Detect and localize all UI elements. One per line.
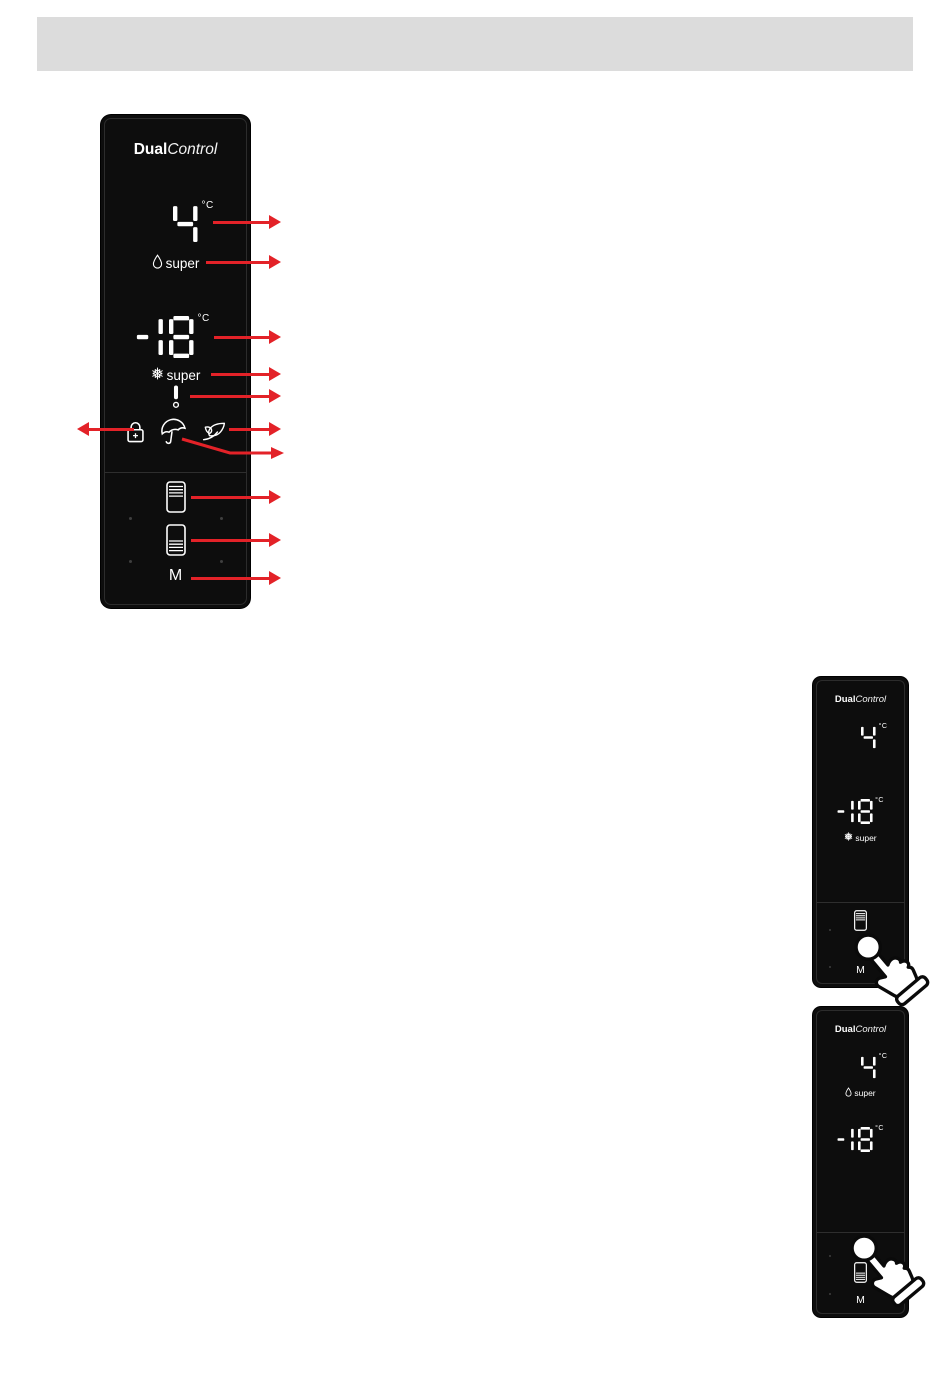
- panel-divider: [816, 902, 905, 903]
- freezer-temp-digits: [837, 1127, 872, 1152]
- brand-logo-italic: Control: [855, 694, 886, 705]
- section-header-bar: [37, 17, 913, 71]
- brand-logo-italic: Control: [855, 1024, 886, 1035]
- fridge-temperature-display: °C: [173, 203, 214, 245]
- freezer-temp-digits: [837, 799, 872, 824]
- arrow-head: [269, 533, 281, 547]
- fridge-temperature-display: °C: [861, 1055, 887, 1080]
- arrow-head: [269, 330, 281, 344]
- callout-arrow-freezer-super: [211, 367, 281, 381]
- arrow-line: [191, 577, 271, 580]
- arrow-line: [191, 539, 271, 542]
- callout-arrow-eco: [229, 422, 281, 436]
- freezer-super-label: super: [855, 833, 876, 843]
- button-area-dot: [220, 560, 223, 563]
- arrow-head: [269, 367, 281, 381]
- arrow-head: [77, 422, 89, 436]
- callout-arrow-freezer-button: [191, 533, 281, 547]
- arrow-head: [269, 389, 281, 403]
- freezer-compartment-icon: [166, 524, 186, 561]
- control-panel-fridge-super-example: DualControl °C super °C M: [813, 1007, 908, 1317]
- freezer-temperature-display: °C: [837, 1127, 884, 1152]
- button-area-dot: [829, 1255, 831, 1257]
- alarm-icon: [171, 385, 181, 414]
- brand-logo: DualControl: [101, 141, 250, 159]
- callout-arrow-fridge-button: [191, 490, 281, 504]
- brand-logo-bold: Dual: [835, 694, 856, 705]
- freezer-temperature-display: °C: [136, 316, 210, 358]
- control-panel-freezer-super-example: DualControl °C °C super: [813, 677, 908, 987]
- fridge-temperature-display: °C: [861, 725, 887, 750]
- fridge-compartment-icon: [166, 481, 186, 518]
- fridge-super-label: super: [854, 1088, 875, 1098]
- button-area-dot: [220, 517, 223, 520]
- droplet-icon: [152, 254, 163, 272]
- arrow-head: [269, 571, 281, 585]
- brand-logo-bold: Dual: [134, 141, 168, 158]
- arrow-head: [269, 490, 281, 504]
- fridge-temp-digits: [173, 203, 198, 245]
- callout-arrow-alarm: [190, 389, 281, 403]
- tap-hand-icon: [850, 933, 924, 1007]
- fridge-super-indicator: super: [813, 1087, 908, 1099]
- brand-logo-italic: Control: [167, 141, 217, 158]
- arrow-head: [269, 422, 281, 436]
- arrow-line: [191, 496, 271, 499]
- freezer-temp-unit: °C: [198, 313, 210, 324]
- brand-logo: DualControl: [813, 1024, 908, 1035]
- arrow-line: [229, 428, 271, 431]
- callout-arrow-holiday: [180, 436, 284, 462]
- snowflake-icon: [844, 832, 853, 843]
- arrow-line: [87, 428, 134, 431]
- fridge-temp-digits: [861, 725, 876, 750]
- droplet-icon: [845, 1087, 852, 1099]
- brand-logo: DualControl: [813, 694, 908, 705]
- freezer-temp-digits: [136, 316, 194, 358]
- button-area-dot: [129, 517, 132, 520]
- freezer-temp-unit: °C: [875, 797, 884, 804]
- arrow-line: [190, 395, 271, 398]
- arrow-head: [269, 215, 281, 229]
- arrow-line: [206, 261, 271, 264]
- fridge-temp-digits: [861, 1055, 876, 1080]
- freezer-super-label: super: [167, 368, 201, 383]
- snowflake-icon: [151, 367, 164, 383]
- callout-arrow-key-lock: [77, 422, 134, 436]
- arrow-head: [269, 255, 281, 269]
- arrow-line: [214, 336, 271, 339]
- button-area-dot: [829, 929, 831, 931]
- callout-arrow-freezer-temp: [214, 330, 281, 344]
- arrow-line: [211, 373, 271, 376]
- tap-hand-icon: [846, 1234, 920, 1308]
- brand-logo-bold: Dual: [835, 1024, 856, 1035]
- arrow-line: [213, 221, 271, 224]
- fridge-temp-unit: °C: [879, 723, 888, 730]
- fridge-temp-unit: °C: [202, 200, 214, 211]
- freezer-temperature-display: °C: [837, 799, 884, 824]
- button-area-dot: [129, 560, 132, 563]
- fridge-temp-unit: °C: [879, 1053, 888, 1060]
- freezer-temp-unit: °C: [875, 1125, 884, 1132]
- freezer-super-indicator: super: [813, 832, 908, 843]
- panel-divider: [104, 472, 247, 473]
- panel-divider: [816, 1232, 905, 1233]
- callout-arrow-fridge-super: [206, 255, 281, 269]
- callout-arrow-fridge-temp: [213, 215, 281, 229]
- callout-arrow-mode-button: [191, 571, 281, 585]
- fridge-super-label: super: [166, 256, 200, 271]
